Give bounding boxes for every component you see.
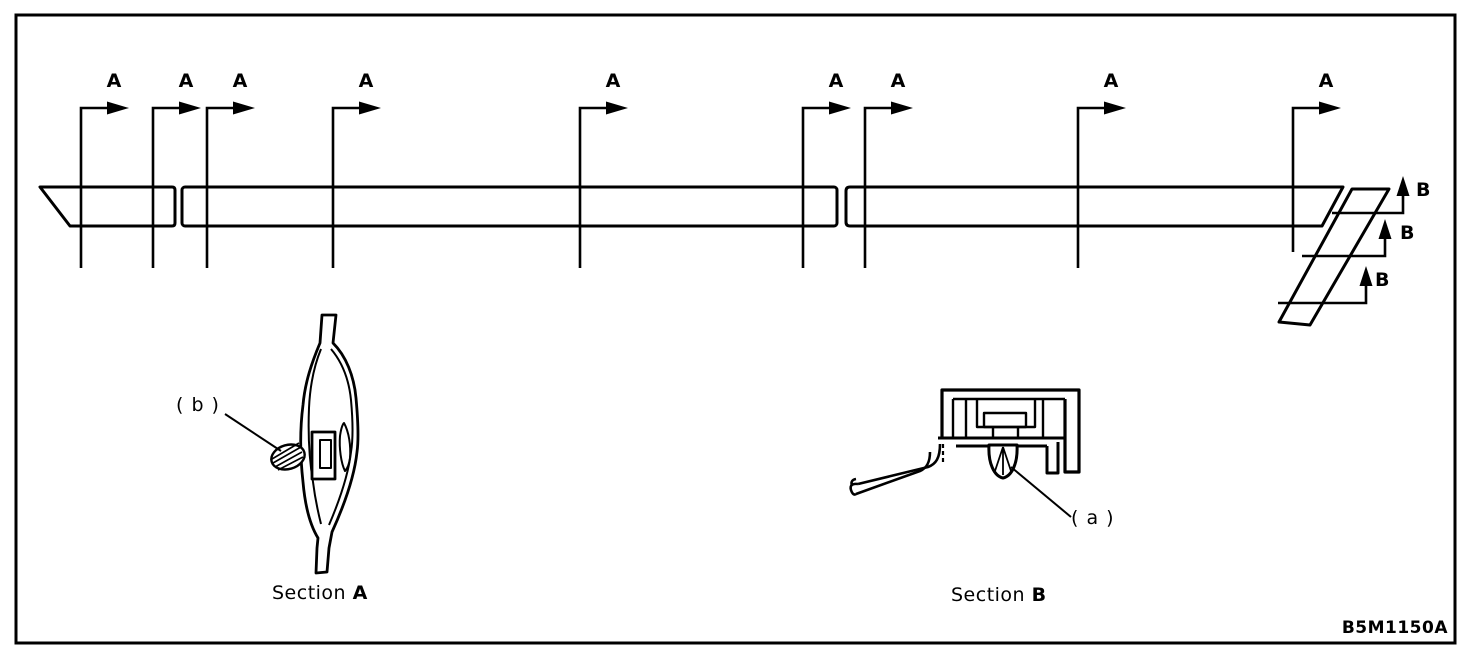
section-b-stem [993,427,1018,438]
cut-marker-a-3: A [233,72,248,91]
figure-line-art [0,0,1472,650]
cut-marker-b-1: B [1416,181,1430,200]
section-b-caption-prefix: Section [951,584,1025,606]
callout-b-label: ( b ) [176,396,220,415]
callout-a-leader [1011,467,1071,517]
cut-marker-a-5: A [606,72,621,91]
section-a-caption: Section A [272,584,368,603]
section-b-caption-letter: B [1032,584,1047,606]
cut-marker-a-9: A [1319,72,1334,91]
cut-line-a-5 [580,102,628,269]
clip-a [989,445,1017,478]
section-b-insert [984,413,1026,427]
section-b-caption: Section B [951,586,1047,605]
cut-marker-a-8: A [1104,72,1119,91]
section-b-lower-leg [1047,442,1058,473]
molding-segment-right [846,187,1343,226]
section-a-detail [225,315,358,573]
section-cut-lines-a [81,102,1341,269]
cut-line-a-4 [333,102,381,269]
cut-line-a-6 [803,102,851,269]
cut-line-a-3 [207,102,255,269]
molding-strip [40,187,1389,325]
cut-line-a-1 [81,102,129,269]
cut-marker-a-7: A [891,72,906,91]
figure-part-code: B5M1150A [1342,620,1448,637]
figure-canvas: A A A A A A A A A B B B ( b ) ( a ) Sect… [0,0,1472,650]
section-b-left-leg [953,399,966,437]
section-b-detail [851,390,1079,517]
section-a-caption-prefix: Section [272,582,346,604]
molding-segment-center [182,187,837,226]
cut-line-a-7 [865,102,913,269]
cut-marker-a-4: A [359,72,374,91]
cut-marker-a-2: A [179,72,194,91]
section-b-body-panel-arm [851,444,943,495]
cut-line-a-2 [153,102,201,269]
molding-segment-left [40,187,175,226]
section-a-caption-letter: A [353,582,368,604]
cut-marker-b-3: B [1375,271,1389,290]
cut-marker-a-1: A [107,72,122,91]
cut-line-a-8 [1078,102,1126,269]
cut-marker-b-2: B [1400,224,1414,243]
cut-marker-a-6: A [829,72,844,91]
callout-a-label: ( a ) [1071,509,1115,528]
callout-b-leader [225,414,281,451]
